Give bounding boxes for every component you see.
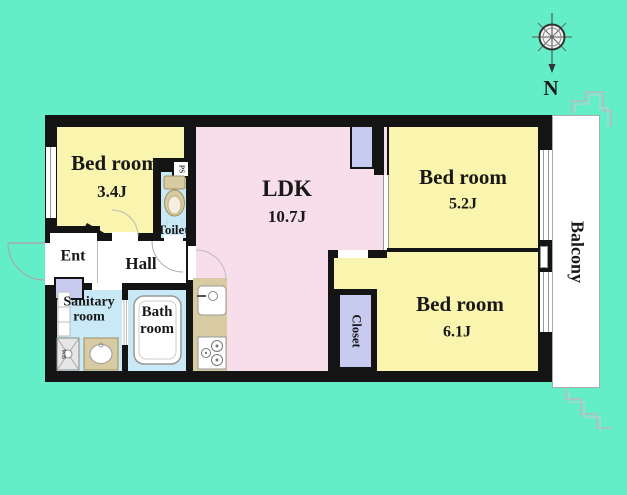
compass-north-label: N — [543, 77, 558, 99]
bedroom1-name: Bed room — [71, 152, 159, 174]
balcony-label: Balcony — [568, 221, 587, 283]
window-glazing-line — [548, 150, 549, 240]
window-bedroom2 — [540, 150, 552, 240]
washer-label: WB — [60, 349, 66, 359]
ldk-size: 10.7J — [268, 208, 306, 226]
window-left — [46, 147, 56, 218]
front-door-swing — [8, 243, 45, 280]
ldk-name: LDK — [262, 177, 312, 201]
closet-label: Closet — [349, 314, 362, 347]
bedroom2-name: Bed room — [419, 166, 507, 188]
window-glazing-line — [548, 272, 549, 332]
shaft-box — [350, 127, 374, 169]
entrance-label: Ent — [61, 249, 86, 266]
kitchen-counter — [193, 278, 227, 371]
entrance-step-line — [97, 241, 98, 283]
compass-icon — [532, 13, 572, 73]
room-bedroom1 — [57, 127, 100, 226]
window-glazing-line — [543, 150, 544, 240]
bath-label-line1: Bath — [142, 305, 173, 321]
floor-plan: PS — [0, 0, 627, 495]
bath-label-line2: room — [140, 322, 174, 338]
toilet-label: Toilet — [157, 223, 188, 237]
hall-ldk-door-gap — [188, 246, 196, 280]
sanitary-door-gap — [92, 283, 122, 290]
sanitary-label-line2: room — [73, 311, 105, 326]
room-bedroom1 — [100, 127, 153, 233]
bath-door-gap — [122, 300, 128, 345]
wall-segment — [374, 127, 384, 175]
bedroom3-door-gap — [338, 250, 368, 258]
ps-label: PS — [177, 165, 184, 173]
bedroom3-size: 6.1J — [443, 325, 471, 342]
hall-label: Hall — [125, 255, 156, 273]
sanitary-label-line1: Sanitary — [63, 296, 114, 311]
bedroom1-size: 3.4J — [97, 183, 127, 201]
ps-box: PS — [172, 160, 190, 178]
bedroom3-name: Bed room — [416, 293, 504, 315]
wall-pier-slot — [540, 246, 548, 268]
window-glazing-line — [50, 147, 51, 218]
window-glazing-line — [543, 272, 544, 332]
bedroom1-door-gap — [112, 232, 138, 242]
bedroom2-size: 5.2J — [449, 197, 477, 214]
window-bedroom3 — [540, 272, 552, 332]
